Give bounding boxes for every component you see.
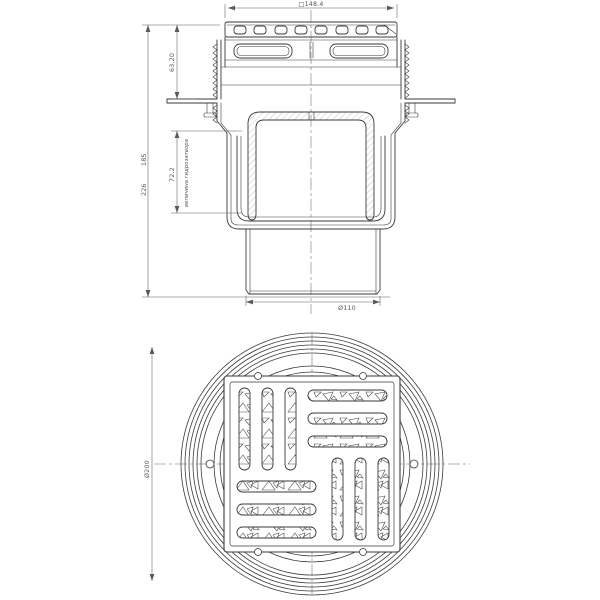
- dim-total-height-label: 226: [141, 183, 148, 196]
- rib-teeth-left: [213, 44, 217, 98]
- screw-hole-right: [410, 460, 418, 468]
- dim-outlet-diameter-label: Ø110: [338, 304, 356, 312]
- flange-left: [167, 99, 217, 103]
- latch-tab: [255, 549, 262, 556]
- latch-tab: [255, 373, 262, 380]
- latch-tab: [360, 549, 367, 556]
- floor-drain-technical-drawing: □148.4 226 185 63.20 72.2 величина гидро…: [0, 0, 600, 600]
- dim-upper-height-label: 63.20: [169, 53, 176, 72]
- side-view-dimensions: □148.4 226 185 63.20 72.2 величина гидро…: [141, 1, 397, 312]
- rib-teeth-left-lower: [213, 105, 217, 123]
- rib-teeth-right-lower: [405, 105, 409, 123]
- dim-body-height-label: 185: [141, 153, 148, 166]
- side-section-view: □148.4 226 185 63.20 72.2 величина гидро…: [141, 1, 455, 314]
- screw-hole-left: [206, 460, 214, 468]
- top-plan-view: Ø200: [143, 333, 470, 595]
- water-seal-note: величина гидрозатвора: [184, 139, 190, 207]
- square-grate: [224, 373, 400, 556]
- grate-cross-section: [225, 22, 397, 67]
- latch-tab: [360, 373, 367, 380]
- rib-teeth-right: [405, 44, 409, 98]
- dim-water-seal-label: 72.2: [169, 167, 176, 182]
- top-view-dimensions: Ø200: [143, 347, 152, 581]
- dim-grate-width-label: □148.4: [298, 1, 323, 8]
- outlet-pipe: [246, 229, 380, 294]
- flange-right: [405, 99, 455, 103]
- dim-outer-diameter-label: Ø200: [143, 460, 151, 478]
- drawing-sheet: □148.4 226 185 63.20 72.2 величина гидро…: [0, 0, 600, 600]
